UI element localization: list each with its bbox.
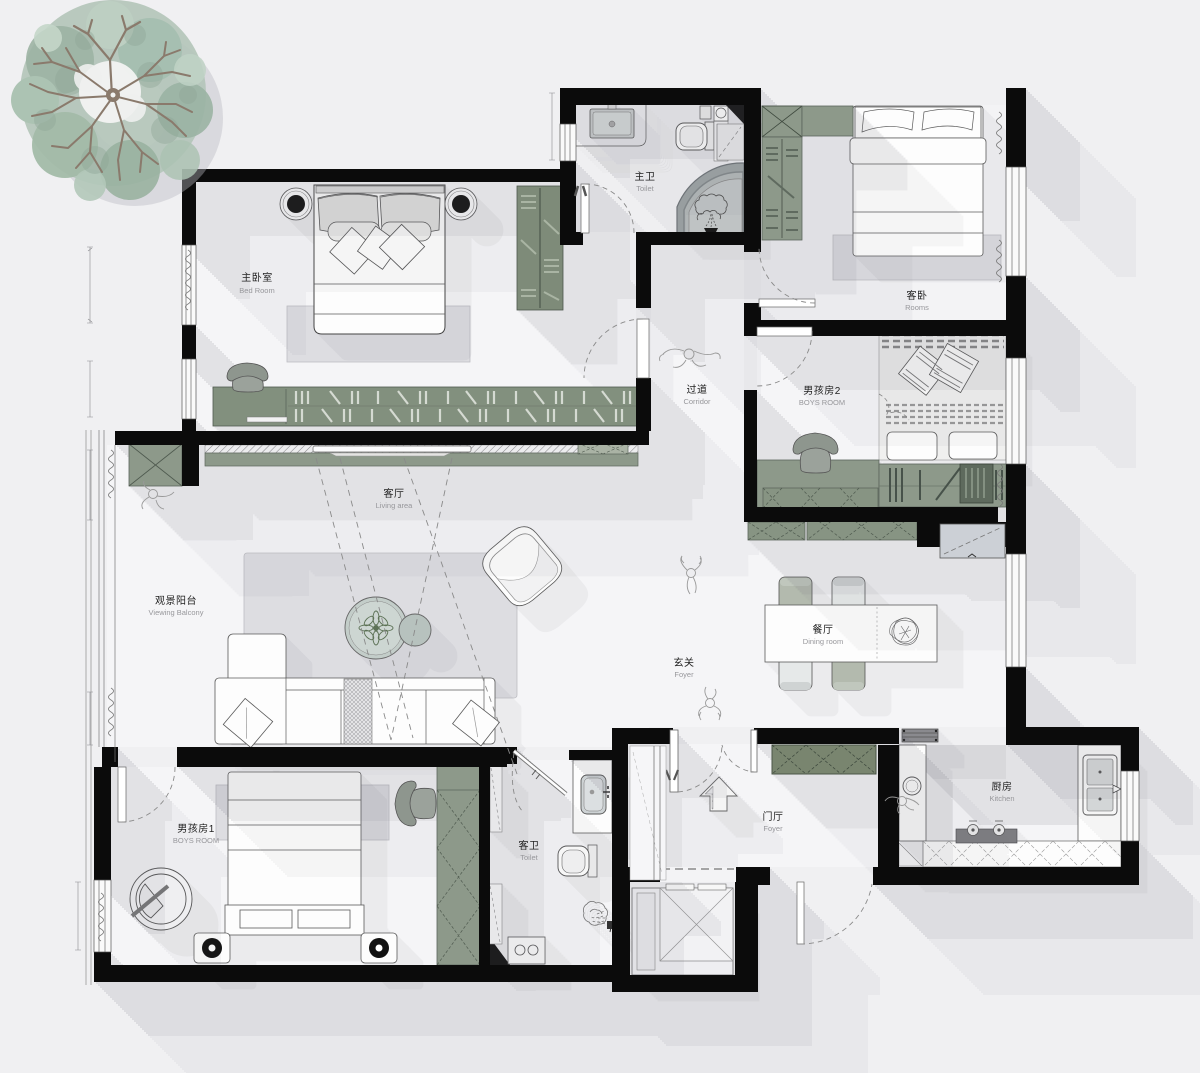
svg-text:Kitchen: Kitchen xyxy=(989,794,1014,803)
svg-text:男孩房1: 男孩房1 xyxy=(177,822,215,835)
svg-text:Viewing Balcony: Viewing Balcony xyxy=(149,608,204,617)
svg-text:餐厅: 餐厅 xyxy=(813,623,834,636)
svg-text:Corridor: Corridor xyxy=(683,397,711,406)
svg-text:主卧室: 主卧室 xyxy=(241,271,273,284)
svg-text:Toilet: Toilet xyxy=(520,853,538,862)
svg-text:Dining room: Dining room xyxy=(803,637,843,646)
svg-text:BOYS ROOM: BOYS ROOM xyxy=(173,836,219,845)
svg-text:主卫: 主卫 xyxy=(635,171,656,183)
svg-text:Foyer: Foyer xyxy=(763,824,783,833)
svg-text:客卧: 客卧 xyxy=(907,289,928,302)
svg-text:客卫: 客卫 xyxy=(519,839,540,852)
svg-text:BOYS ROOM: BOYS ROOM xyxy=(799,398,845,407)
svg-text:过道: 过道 xyxy=(687,383,708,396)
svg-text:门厅: 门厅 xyxy=(763,810,784,823)
svg-text:Toilet: Toilet xyxy=(636,184,654,193)
svg-text:观景阳台: 观景阳台 xyxy=(155,594,197,607)
svg-text:Foyer: Foyer xyxy=(674,670,694,679)
svg-text:Rooms: Rooms xyxy=(905,303,929,312)
svg-text:Living area: Living area xyxy=(376,501,414,510)
svg-text:Bed Room: Bed Room xyxy=(239,286,274,295)
svg-text:厨房: 厨房 xyxy=(992,780,1013,793)
svg-text:玄关: 玄关 xyxy=(674,656,695,669)
svg-text:男孩房2: 男孩房2 xyxy=(803,384,841,397)
svg-text:客厅: 客厅 xyxy=(384,487,405,500)
